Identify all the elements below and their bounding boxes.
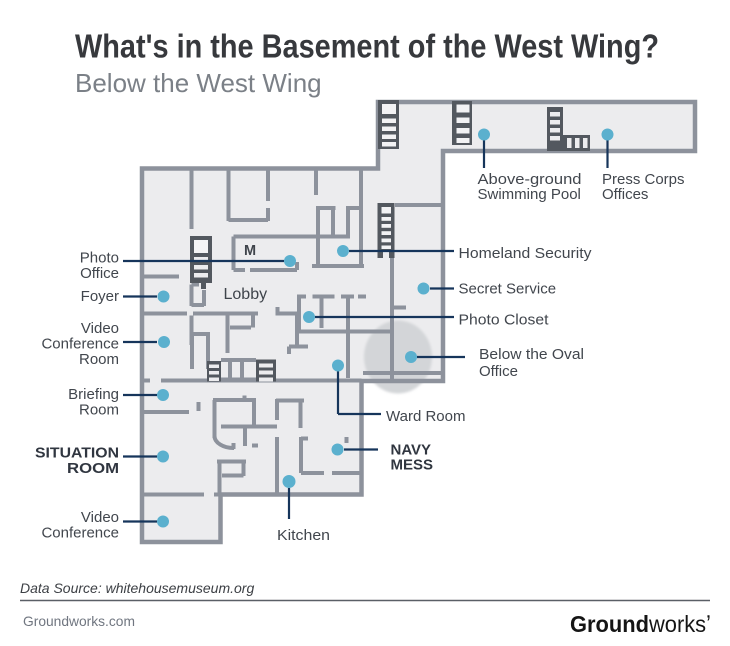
svg-text:Kitchen: Kitchen	[277, 527, 330, 544]
svg-text:Photo: Photo	[80, 250, 119, 267]
svg-text:Video: Video	[81, 320, 119, 337]
svg-text:Conference: Conference	[41, 336, 119, 353]
svg-text:Groundworksʼ: Groundworksʼ	[570, 611, 711, 637]
svg-text:M: M	[244, 243, 256, 259]
svg-text:Secret Service: Secret Service	[459, 281, 557, 298]
svg-text:Below the Oval: Below the Oval	[479, 346, 584, 363]
svg-text:Office: Office	[479, 363, 518, 380]
svg-text:Data Source: whitehousemuseum.: Data Source: whitehousemuseum.org	[20, 580, 254, 596]
svg-text:Office: Office	[80, 265, 119, 282]
svg-text:Below the West Wing: Below the West Wing	[75, 68, 322, 98]
svg-text:Offices: Offices	[602, 186, 648, 203]
svg-text:Swimming Pool: Swimming Pool	[478, 186, 581, 203]
svg-text:Video: Video	[81, 509, 119, 526]
svg-text:Briefing: Briefing	[68, 386, 119, 403]
svg-text:Ward Room: Ward Room	[386, 408, 465, 425]
svg-text:Photo Closet: Photo Closet	[459, 312, 550, 329]
svg-text:ROOM: ROOM	[67, 461, 119, 477]
svg-text:Homeland Security: Homeland Security	[459, 245, 593, 262]
svg-text:Lobby: Lobby	[224, 286, 268, 303]
svg-text:Room: Room	[79, 402, 119, 419]
svg-text:Room: Room	[79, 351, 119, 368]
svg-text:Conference: Conference	[41, 525, 119, 542]
svg-text:SITUATION: SITUATION	[35, 446, 119, 462]
svg-text:What's in the Basement of the: What's in the Basement of the West Wing?	[75, 28, 659, 65]
svg-text:Groundworks.com: Groundworks.com	[23, 614, 135, 629]
svg-text:MESS: MESS	[391, 457, 434, 474]
svg-text:Foyer: Foyer	[81, 288, 119, 305]
